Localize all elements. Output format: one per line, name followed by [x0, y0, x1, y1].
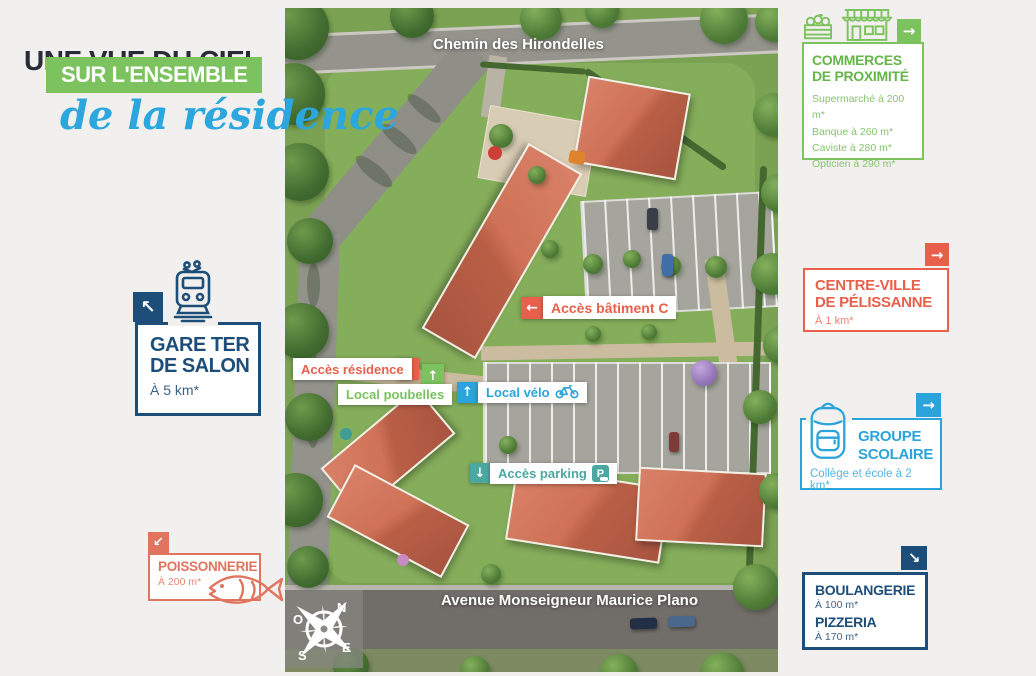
teal-umbrella [340, 428, 352, 440]
tree [743, 390, 777, 424]
tree [528, 166, 546, 184]
tree [285, 143, 329, 201]
subtitle-badge: SUR L'ENSEMBLE [46, 57, 262, 93]
tree [287, 546, 329, 588]
gare-card: GARE TER DE SALON À 5 km* [135, 322, 261, 416]
commerces-card: COMMERCES DE PROXIMITÉ Supermarché à 200… [802, 42, 924, 160]
pizzeria-distance: À 170 m* [815, 631, 925, 643]
page: UNE VUE DU CIEL SUR L'ENSEMBLE de la rés… [0, 0, 1036, 676]
tree-shadow [307, 263, 320, 307]
compass-e: E [342, 640, 351, 655]
centre-ville-card: CENTRE-VILLE DE PÉLISSANNE À 1 km* [803, 268, 949, 332]
building-a [573, 76, 691, 181]
acces-parking-text: Accès parking [498, 466, 587, 481]
centre-ville-title-line1: CENTRE-VILLE [815, 277, 937, 294]
boulangerie-title: BOULANGERIE [815, 582, 925, 598]
arrow-right-icon: → [925, 243, 949, 266]
access-batiment-c-text: Accès bâtiment C [551, 300, 668, 316]
access-batiment-c-label: Accès bâtiment C [543, 296, 676, 319]
subtitle-script: de la résidence [60, 92, 399, 139]
local-poubelles-label: Local poubelles [338, 384, 452, 405]
compass-rose: N O E S [285, 590, 363, 668]
compass-star-icon [285, 590, 363, 668]
parking-lot-central [483, 362, 771, 474]
compass-n: N [337, 600, 346, 615]
tree [541, 240, 559, 258]
commerces-title-line1: COMMERCES [812, 52, 914, 68]
car [630, 618, 657, 630]
arrow-left-icon: ← [521, 297, 543, 319]
tree [481, 564, 501, 584]
boulangerie-distance: À 100 m* [815, 599, 925, 611]
fish-icon [202, 568, 288, 617]
backpack-icon [806, 398, 850, 469]
gare-title-line1: GARE TER [150, 335, 258, 356]
local-velo-text: Local vélo [486, 385, 550, 400]
local-velo-label: Local vélo [478, 382, 587, 403]
tree [499, 436, 517, 454]
car [669, 432, 679, 452]
access-residence-label: Accès résidence [293, 358, 412, 380]
gare-distance: À 5 km* [150, 382, 258, 398]
tree [753, 93, 778, 137]
commerces-item: Opticien à 290 m* [812, 156, 914, 172]
groupe-scolaire-title-line1: GROUPE [858, 428, 932, 446]
arrow-down-icon: ↓ [470, 463, 490, 483]
pizzeria-title: PIZZERIA [815, 614, 925, 630]
car [662, 254, 673, 276]
car [647, 208, 658, 230]
tree [705, 256, 727, 278]
groupe-scolaire-title-line2: SCOLAIRE [858, 446, 932, 464]
tree [733, 564, 778, 610]
tree [489, 124, 513, 148]
parking-icon: P [592, 465, 609, 482]
commerces-item: Supermarché à 200 m* [812, 91, 914, 124]
tree [287, 218, 333, 264]
tree [641, 324, 657, 340]
compass-o: O [293, 612, 303, 627]
bicycle-icon [555, 384, 579, 402]
commerces-item: Caviste à 280 m* [812, 140, 914, 156]
arrow-nw-icon: ↖ [133, 292, 163, 322]
commerces-list: Supermarché à 200 m* Banque à 260 m* Cav… [812, 91, 914, 172]
pink-tree [397, 554, 409, 566]
jacaranda-tree [691, 360, 717, 386]
tree [285, 393, 333, 441]
commerces-item: Banque à 260 m* [812, 124, 914, 140]
arrow-right-icon: → [916, 393, 941, 417]
orange-awning [568, 150, 586, 166]
compass-s: S [298, 648, 307, 663]
centre-ville-title-line2: DE PÉLISSANNE [815, 294, 937, 311]
shop-icon [838, 6, 896, 47]
commerces-title-line2: DE PROXIMITÉ [812, 68, 914, 84]
local-poubelles-text: Local poubelles [346, 387, 444, 402]
centre-ville-distance: À 1 km* [815, 315, 937, 327]
building-d-east-wing [635, 467, 767, 548]
red-umbrella [488, 146, 502, 160]
street-name-top: Chemin des Hirondelles [433, 36, 604, 53]
access-residence-text: Accès résidence [301, 362, 404, 377]
train-icon [170, 260, 216, 329]
arrow-right-icon: → [897, 19, 921, 42]
arrow-sw-icon: ↙ [148, 532, 169, 553]
car [668, 616, 695, 628]
gare-title-line2: DE SALON [150, 356, 258, 377]
tree [763, 326, 778, 364]
acces-parking-label: Accès parking P [490, 463, 617, 484]
street-name-bottom: Avenue Monseigneur Maurice Plano [441, 592, 698, 609]
arrow-se-icon: ↘ [901, 546, 927, 570]
boulangerie-pizzeria-card: BOULANGERIE À 100 m* PIZZERIA À 170 m* [802, 572, 928, 650]
arrow-up-icon: ↑ [457, 382, 478, 403]
tree [585, 326, 601, 342]
tree [583, 254, 603, 274]
tree [623, 250, 641, 268]
groupe-scolaire-distance: Collège et école à 2 km* [810, 468, 932, 492]
fruit-crate-icon [801, 14, 835, 47]
